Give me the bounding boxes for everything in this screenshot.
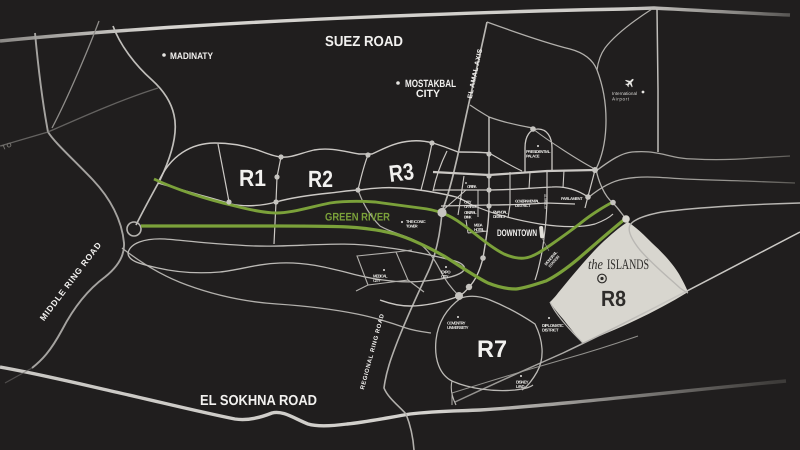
svg-text:PARLAMENT: PARLAMENT (561, 196, 583, 201)
svg-text:CITY: CITY (441, 274, 449, 279)
svg-text:OPERA: OPERA (467, 184, 477, 189)
svg-text:SUEZ ROAD: SUEZ ROAD (325, 34, 403, 50)
svg-text:EL SOKHNA ROAD: EL SOKHNA ROAD (200, 393, 317, 409)
svg-text:OF ARTS: OF ARTS (464, 204, 477, 209)
svg-text:UNIVERSETY: UNIVERSETY (447, 325, 469, 330)
svg-text:DISTRICT: DISTRICT (493, 214, 506, 219)
svg-text:R7: R7 (477, 336, 507, 363)
svg-text:DOWNTOWN: DOWNTOWN (497, 228, 537, 239)
svg-text:DISTRICT: DISTRICT (542, 328, 559, 333)
svg-text:R3: R3 (387, 158, 415, 187)
svg-text:the: the (588, 257, 603, 273)
svg-text:LAND: LAND (516, 384, 525, 389)
svg-text:R1: R1 (239, 165, 266, 191)
svg-text:DISTRICT: DISTRICT (515, 203, 531, 208)
svg-text:AL AMAL ST: AL AMAL ST (543, 194, 548, 210)
svg-text:CITY: CITY (373, 278, 381, 283)
svg-text:CITY: CITY (416, 88, 440, 100)
svg-text:PALACE: PALACE (526, 154, 540, 159)
svg-text:HOTEL: HOTEL (474, 227, 485, 232)
svg-text:R8: R8 (601, 286, 626, 311)
svg-text:GREEN RIVER: GREEN RIVER (325, 212, 390, 224)
svg-text:MADINATY: MADINATY (170, 51, 214, 62)
svg-text:BANK: BANK (464, 215, 472, 220)
svg-text:International: International (612, 91, 637, 96)
svg-text:TOWER: TOWER (406, 224, 418, 229)
svg-text:R2: R2 (308, 166, 333, 192)
svg-text:Airport: Airport (612, 97, 630, 102)
svg-text:ISLANDS: ISLANDS (607, 257, 649, 273)
